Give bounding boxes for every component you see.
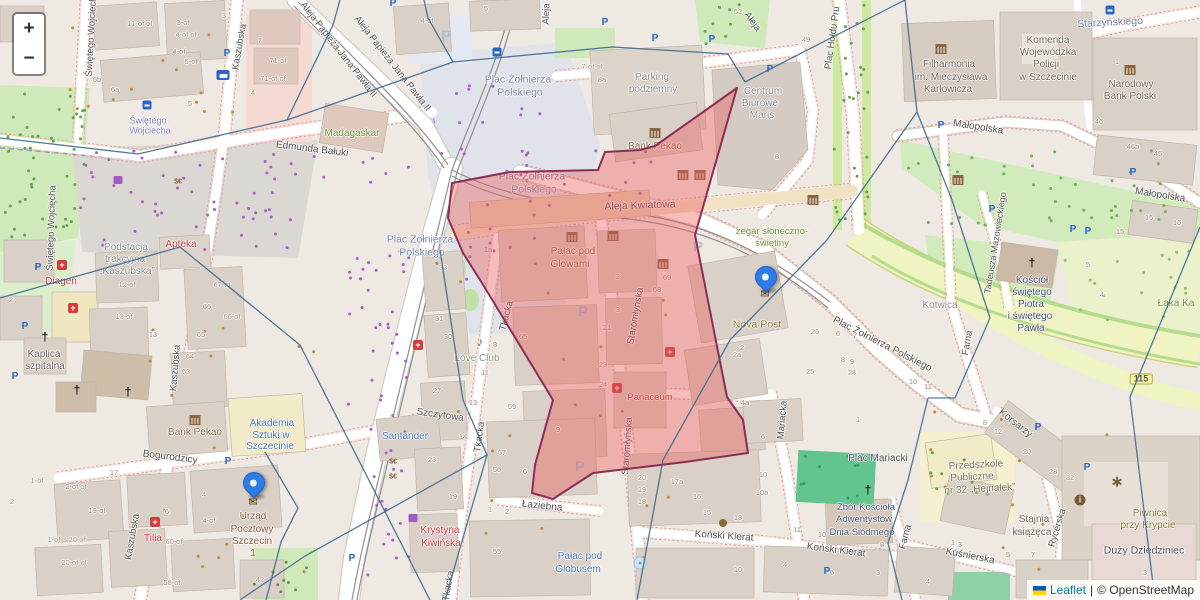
cell-boundary-line [424, 0, 453, 62]
zoom-control: + − [12, 12, 46, 76]
zoom-in-button[interactable]: + [14, 14, 44, 44]
attribution-bar: Leaflet | © OpenStreetMap [1027, 580, 1200, 600]
cell-boundary-line [928, 318, 990, 398]
cell-boundary-line [917, 112, 990, 318]
osm-attribution: © OpenStreetMap [1097, 583, 1194, 597]
cell-boundary-line [0, 247, 430, 600]
cell-boundary-line [445, 455, 487, 600]
map-canvas[interactable]: Świętego WojciechaŚwiętego WojciechaŚwię… [0, 0, 1200, 600]
cell-boundary-line [0, 47, 745, 154]
cell-boundary-line [240, 250, 487, 600]
cell-boundary-line [265, 452, 298, 600]
highlight-polygon[interactable] [448, 88, 748, 499]
zoom-out-button[interactable]: − [14, 44, 44, 74]
cell-boundary-line [888, 398, 928, 600]
ukraine-flag-icon [1033, 586, 1046, 595]
attribution-separator: | [1090, 583, 1093, 597]
cell-boundary-line [745, 0, 905, 82]
leaflet-link[interactable]: Leaflet [1050, 583, 1086, 597]
cell-boundary-line [1130, 227, 1200, 600]
overlay-layer [0, 0, 1200, 600]
cell-boundary-line [287, 0, 340, 120]
